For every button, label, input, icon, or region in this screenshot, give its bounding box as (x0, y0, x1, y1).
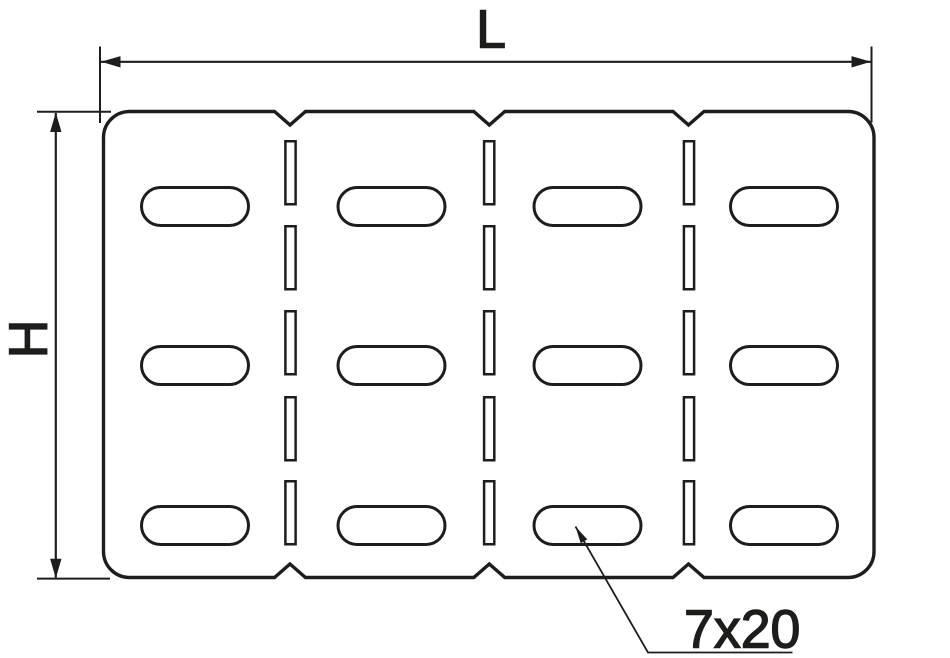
svg-text:H: H (0, 320, 59, 359)
svg-text:L: L (476, 0, 506, 60)
svg-text:7x20: 7x20 (684, 599, 800, 658)
